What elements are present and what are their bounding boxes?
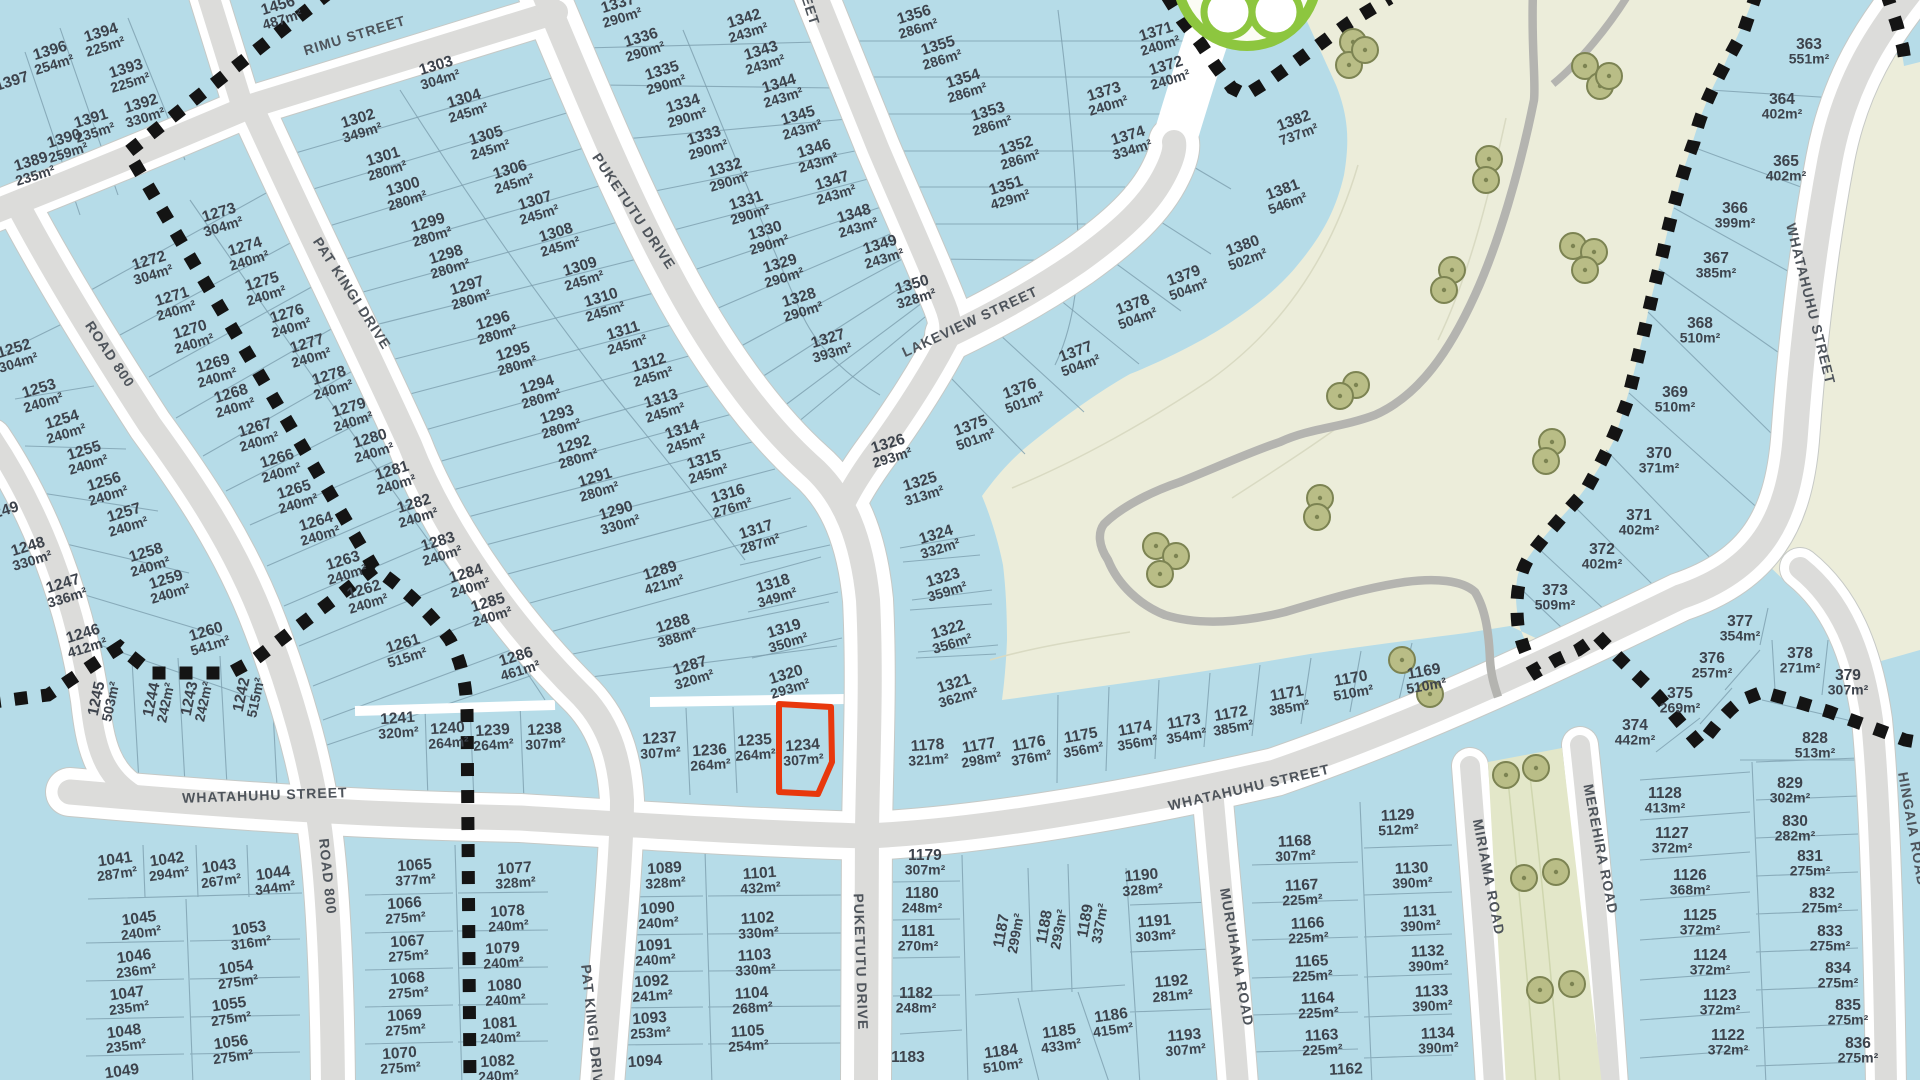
svg-text:1134390m²: 1134390m² — [1417, 1024, 1459, 1057]
svg-text:1167225m²: 1167225m² — [1281, 876, 1323, 909]
svg-text:1079240m²: 1079240m² — [482, 939, 525, 972]
svg-text:1077328m²: 1077328m² — [494, 859, 537, 892]
svg-text:1238307m²: 1238307m² — [524, 720, 567, 753]
svg-text:1080240m²: 1080240m² — [484, 976, 527, 1009]
svg-text:1078240m²: 1078240m² — [487, 902, 530, 935]
svg-text:1192281m²: 1192281m² — [1151, 971, 1194, 1005]
svg-text:1092241m²: 1092241m² — [631, 972, 674, 1005]
svg-text:1191303m²: 1191303m² — [1134, 911, 1177, 945]
svg-text:1133390m²: 1133390m² — [1411, 982, 1453, 1015]
svg-text:1166225m²: 1166225m² — [1287, 914, 1329, 947]
svg-text:1065377m²: 1065377m² — [394, 856, 437, 889]
svg-text:1241320m²: 1241320m² — [377, 709, 420, 742]
svg-text:1089328m²: 1089328m² — [644, 859, 687, 892]
svg-text:1178321m²: 1178321m² — [907, 736, 950, 769]
svg-text:1162: 1162 — [1329, 1060, 1363, 1079]
svg-text:1163225m²: 1163225m² — [1301, 1026, 1343, 1059]
svg-text:1069275m²: 1069275m² — [384, 1006, 427, 1039]
svg-text:1237307m²: 1237307m² — [639, 729, 682, 762]
svg-text:1082240m²: 1082240m² — [477, 1052, 520, 1080]
svg-text:1070275m²: 1070275m² — [379, 1044, 422, 1077]
svg-text:1125372m²: 1125372m² — [1680, 907, 1721, 938]
svg-text:1239264m²: 1239264m² — [472, 721, 515, 754]
svg-text:1236264m²: 1236264m² — [689, 741, 732, 774]
svg-text:1067275m²: 1067275m² — [387, 932, 430, 965]
svg-text:1093253m²: 1093253m² — [629, 1009, 672, 1042]
svg-text:1124372m²: 1124372m² — [1690, 947, 1731, 978]
svg-text:1122372m²: 1122372m² — [1708, 1027, 1749, 1058]
svg-text:1094: 1094 — [627, 1052, 663, 1071]
svg-text:1130390m²: 1130390m² — [1391, 859, 1433, 892]
svg-text:1091240m²: 1091240m² — [634, 936, 677, 969]
svg-text:1179307m²: 1179307m² — [905, 847, 946, 878]
svg-text:1102330m²: 1102330m² — [737, 909, 780, 942]
svg-text:1131390m²: 1131390m² — [1399, 902, 1441, 935]
svg-text:1235264m²: 1235264m² — [734, 731, 777, 764]
svg-text:1190328m²: 1190328m² — [1121, 865, 1164, 899]
svg-text:1181270m²: 1181270m² — [898, 923, 939, 954]
svg-text:1240264m²: 1240264m² — [427, 719, 470, 752]
svg-text:1183: 1183 — [891, 1049, 925, 1066]
svg-text:1066275m²: 1066275m² — [384, 894, 427, 927]
svg-text:1128413m²: 1128413m² — [1645, 785, 1686, 816]
svg-text:1165225m²: 1165225m² — [1291, 952, 1333, 985]
svg-text:1105254m²: 1105254m² — [727, 1022, 770, 1055]
svg-text:1081240m²: 1081240m² — [479, 1014, 522, 1047]
svg-text:1103330m²: 1103330m² — [734, 946, 777, 979]
svg-text:1164225m²: 1164225m² — [1297, 989, 1339, 1022]
svg-text:1168307m²: 1168307m² — [1274, 832, 1316, 865]
svg-text:1068275m²: 1068275m² — [387, 969, 430, 1002]
svg-text:1132390m²: 1132390m² — [1407, 942, 1449, 975]
svg-text:1129512m²: 1129512m² — [1377, 806, 1419, 839]
svg-text:1182248m²: 1182248m² — [896, 985, 937, 1016]
svg-text:1101432m²: 1101432m² — [739, 864, 782, 897]
svg-text:1104268m²: 1104268m² — [731, 984, 774, 1017]
svg-text:1090240m²: 1090240m² — [637, 899, 680, 932]
svg-text:1193307m²: 1193307m² — [1164, 1025, 1207, 1059]
svg-text:1180248m²: 1180248m² — [902, 885, 943, 916]
svg-text:1127372m²: 1127372m² — [1652, 825, 1693, 856]
svg-text:1234307m²: 1234307m² — [782, 736, 825, 769]
svg-text:1123372m²: 1123372m² — [1700, 987, 1741, 1018]
svg-text:1126368m²: 1126368m² — [1670, 867, 1711, 898]
